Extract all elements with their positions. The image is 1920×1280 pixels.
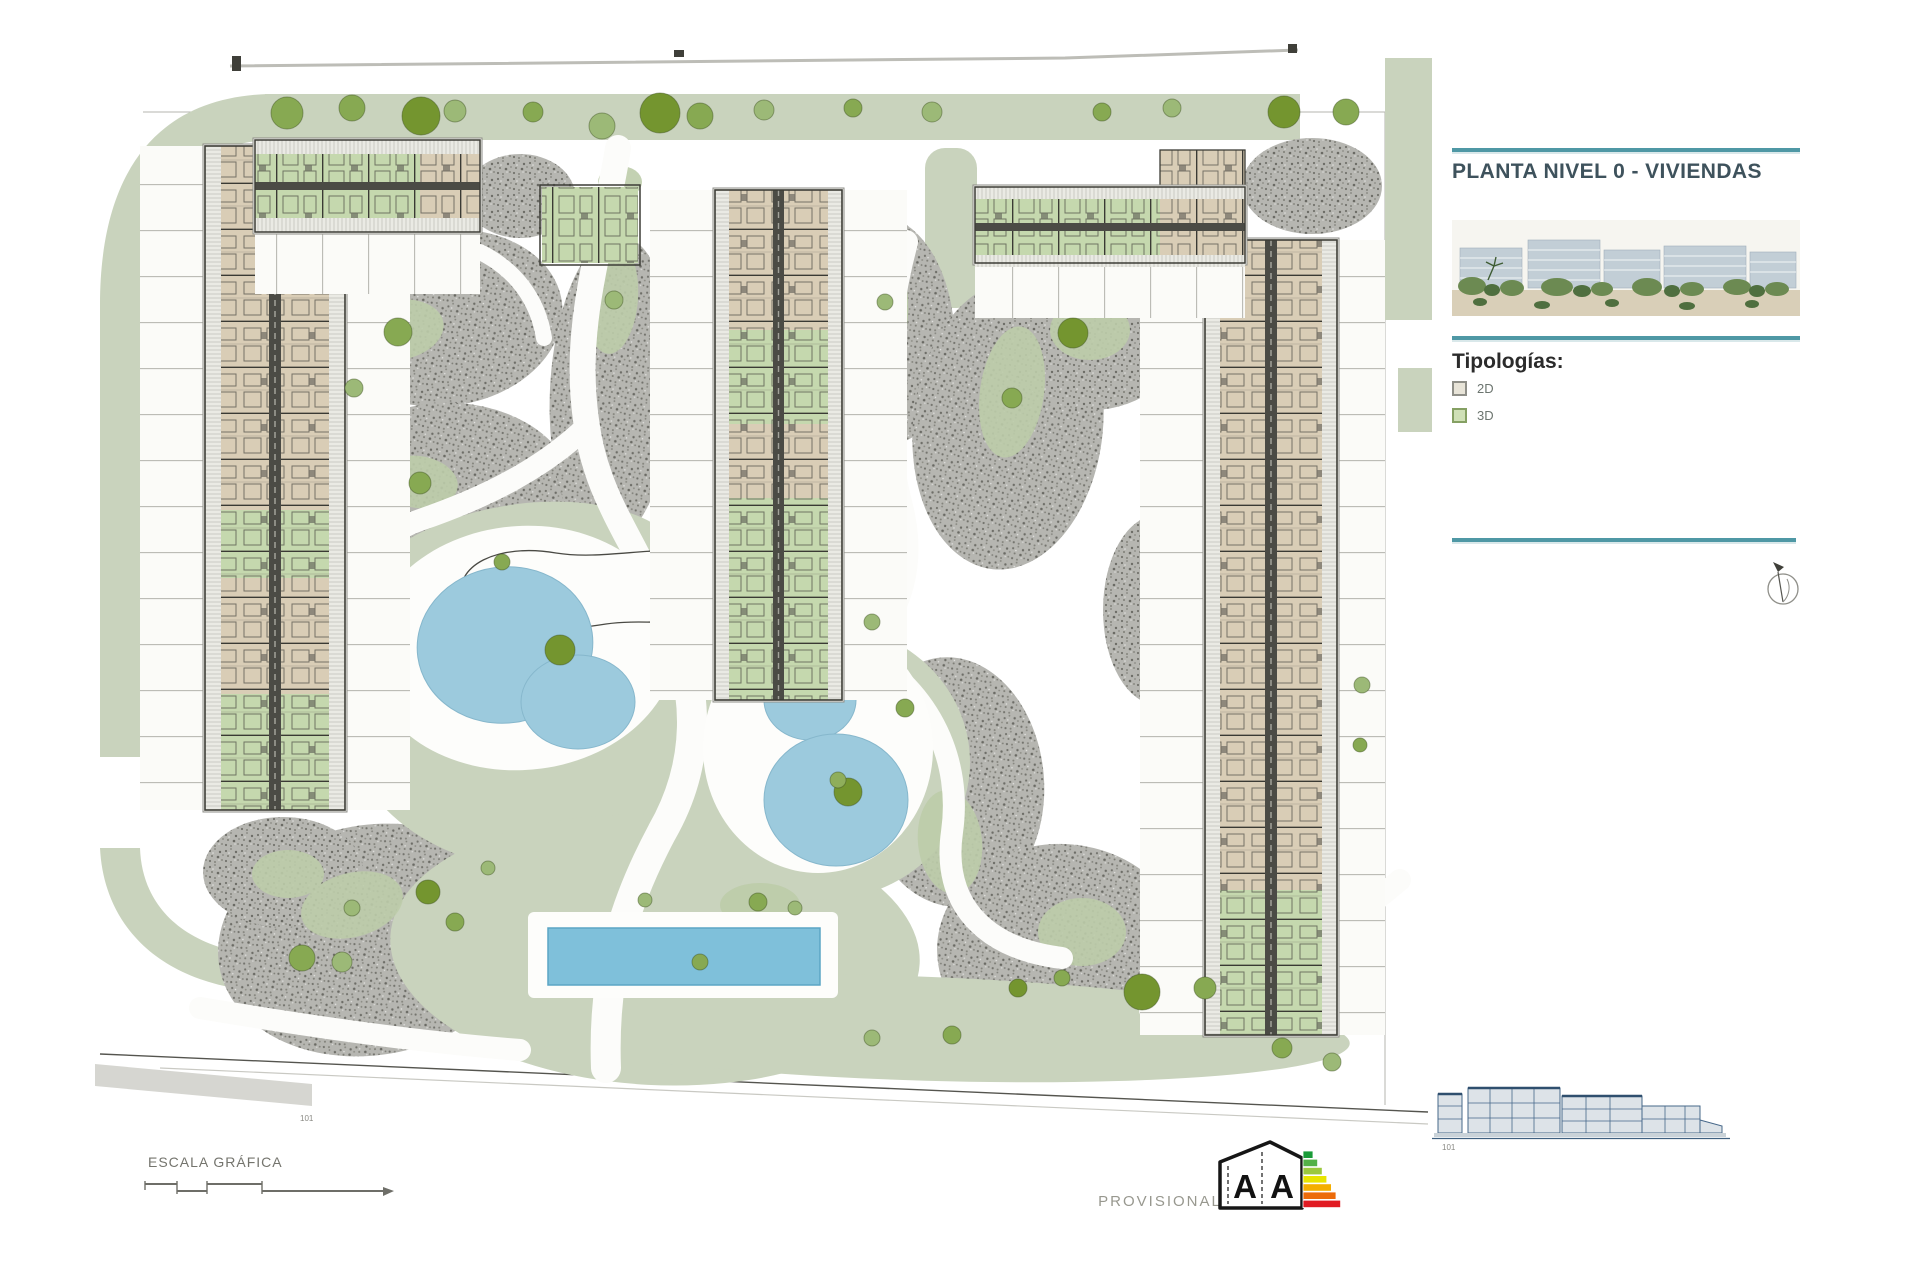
energy-bars bbox=[1303, 1151, 1341, 1208]
page-title: PLANTA NIVEL 0 - VIVIENDAS bbox=[1452, 160, 1812, 184]
energy-rating-icon: A A bbox=[1220, 1142, 1341, 1208]
panel-rule-bottom bbox=[1452, 538, 1796, 542]
plan-sheet: ESCALA GRÁFICA 101 PROVISIONAL A A 101 bbox=[0, 0, 1920, 1280]
project-render-image bbox=[1452, 220, 1800, 316]
site-ref-label: 101 bbox=[300, 1114, 314, 1123]
site-plan-drawing: ESCALA GRÁFICA 101 PROVISIONAL A A 101 bbox=[0, 0, 1920, 1280]
building-elevation-sketch bbox=[1432, 1088, 1730, 1139]
lap-pool bbox=[548, 928, 820, 985]
legend-label-2d: 2D bbox=[1477, 381, 1494, 396]
energy-letter-left: A bbox=[1233, 1168, 1257, 1205]
elevation-ref-label: 101 bbox=[1442, 1143, 1456, 1152]
building-top-east bbox=[973, 150, 1247, 318]
energy-letter-right: A bbox=[1270, 1168, 1294, 1205]
panel-rule-middle bbox=[1452, 336, 1800, 340]
legend-swatch-2d bbox=[1452, 381, 1467, 396]
legend-item-2d: 2D bbox=[1452, 381, 1494, 396]
legend-label-3d: 3D bbox=[1477, 408, 1494, 423]
provisional-label: PROVISIONAL bbox=[1098, 1193, 1222, 1210]
compass-north-icon bbox=[1768, 562, 1798, 604]
building-right bbox=[1140, 238, 1385, 1037]
building-top-west bbox=[253, 138, 482, 294]
graphic-scale-bar bbox=[145, 1181, 394, 1196]
scale-label: ESCALA GRÁFICA bbox=[148, 1154, 283, 1170]
typologies-heading: Tipologías: bbox=[1452, 350, 1564, 374]
panel-rule-top bbox=[1452, 148, 1800, 152]
building-top-center bbox=[540, 185, 640, 265]
legend-swatch-3d bbox=[1452, 408, 1467, 423]
legend-item-3d: 3D bbox=[1452, 408, 1494, 423]
